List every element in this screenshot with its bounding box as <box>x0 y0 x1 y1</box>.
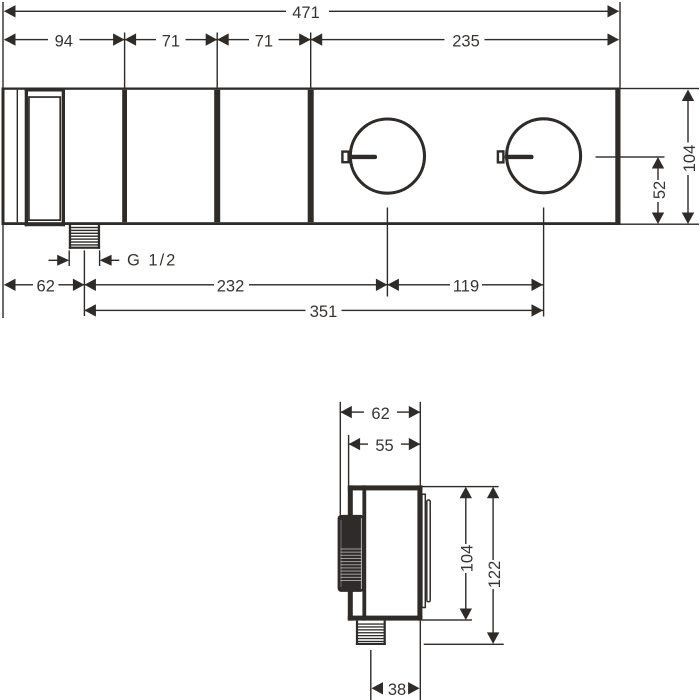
svg-text:71: 71 <box>255 32 273 50</box>
svg-text:52: 52 <box>651 181 669 199</box>
svg-text:351: 351 <box>310 303 338 321</box>
svg-text:38: 38 <box>388 681 406 699</box>
svg-text:62: 62 <box>371 405 389 423</box>
svg-text:G 1/2: G 1/2 <box>127 252 177 270</box>
svg-text:55: 55 <box>375 437 393 455</box>
svg-text:119: 119 <box>453 278 479 296</box>
svg-text:232: 232 <box>217 278 245 296</box>
svg-text:122: 122 <box>486 561 504 589</box>
svg-text:94: 94 <box>55 32 73 50</box>
svg-text:104: 104 <box>681 145 699 173</box>
svg-text:471: 471 <box>292 4 320 22</box>
svg-text:71: 71 <box>162 32 180 50</box>
svg-text:235: 235 <box>452 32 480 50</box>
svg-text:62: 62 <box>37 278 55 296</box>
svg-text:104: 104 <box>459 545 477 573</box>
